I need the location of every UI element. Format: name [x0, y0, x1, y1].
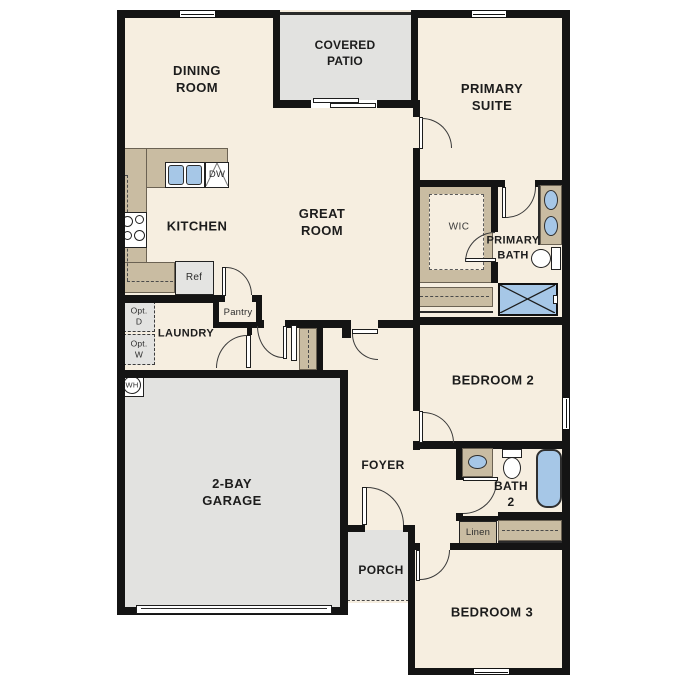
shelf-dashed-line [502, 530, 558, 531]
sink-icon [468, 455, 487, 469]
label-opt-washer: Opt. W [131, 338, 148, 359]
sink-basin-icon [168, 165, 184, 185]
wall [213, 322, 262, 328]
room-label-bedroom3: BEDROOM 3 [451, 603, 533, 620]
primary-suite-window [471, 10, 507, 18]
label-opt-dryer: Opt. D [131, 305, 148, 326]
closet-front-line [416, 311, 493, 313]
wall [342, 320, 351, 338]
room-label-primary-bath: PRIMARY BATH [486, 233, 539, 262]
label-linen: Linen [466, 527, 490, 539]
wall [413, 148, 420, 183]
wall [491, 183, 498, 232]
label-dishwasher: DW [209, 169, 225, 181]
wall [413, 317, 563, 325]
porch-edge-dashed-line [347, 600, 409, 601]
room-label-great-room: GREAT ROOM [299, 205, 346, 239]
hall-linen-shelf [416, 287, 493, 307]
exterior-mask [117, 615, 348, 677]
wall [411, 12, 418, 108]
room-label-garage: 2-BAY GARAGE [202, 475, 261, 509]
wall [413, 100, 420, 117]
floor-plan: DINING ROOM COVERED PATIO PRIMARY SUITE … [0, 0, 687, 687]
wall [403, 525, 415, 532]
counter-dashed-line [127, 281, 173, 282]
wall [413, 325, 420, 411]
garage-door [136, 605, 332, 614]
wall [273, 12, 280, 108]
shelf-dashed-line [420, 296, 489, 297]
sliding-door [330, 103, 376, 108]
burner-icon [135, 215, 144, 224]
toilet-tank-icon [551, 247, 561, 270]
patio-roof-line [273, 12, 418, 15]
room-label-porch: PORCH [358, 563, 403, 579]
burner-icon [134, 230, 145, 241]
shower-icon [498, 283, 558, 316]
kitchen-counter-lower [124, 262, 175, 293]
room-label-foyer: FOYER [361, 458, 404, 474]
hall-door [283, 326, 287, 359]
wall [491, 262, 498, 283]
wall [247, 322, 252, 335]
room-label-bedroom2: BEDROOM 2 [452, 371, 534, 388]
room-label-kitchen: KITCHEN [167, 217, 228, 234]
label-refrigerator: Ref [186, 272, 202, 285]
exterior-mask [348, 603, 408, 677]
bedroom3-window [473, 668, 510, 675]
room-label-wic: WIC [449, 220, 470, 233]
bedroom2-window [562, 397, 570, 430]
wall [562, 10, 570, 675]
room-label-laundry: LAUNDRY [158, 327, 214, 342]
bathtub-icon [536, 449, 562, 508]
room-label-patio: COVERED PATIO [315, 38, 376, 70]
wall [450, 543, 563, 550]
closet-door [291, 325, 297, 361]
wall [340, 378, 348, 615]
sink-icon [544, 190, 558, 210]
wall [317, 325, 323, 372]
label-water-heater: WH [126, 380, 139, 389]
wall [456, 516, 498, 521]
room-label-bath2: BATH 2 [494, 479, 528, 511]
closet-rod-dashed-line [308, 330, 309, 368]
wall [498, 512, 563, 520]
wall [408, 543, 420, 550]
sink-icon [544, 216, 558, 236]
label-pantry: Pantry [224, 307, 253, 319]
room-label-dining: DINING ROOM [173, 62, 221, 96]
wall [378, 320, 415, 328]
sink-basin-icon [186, 165, 202, 185]
dining-window [179, 10, 216, 18]
toilet-icon [503, 457, 521, 479]
wall [413, 183, 420, 317]
wall [340, 525, 365, 532]
room-label-primary-suite: PRIMARY SUITE [461, 80, 523, 114]
garage-door-line [141, 608, 327, 609]
wall [117, 370, 348, 378]
shower-door [553, 295, 558, 304]
wall [117, 10, 125, 615]
wall [117, 295, 214, 303]
